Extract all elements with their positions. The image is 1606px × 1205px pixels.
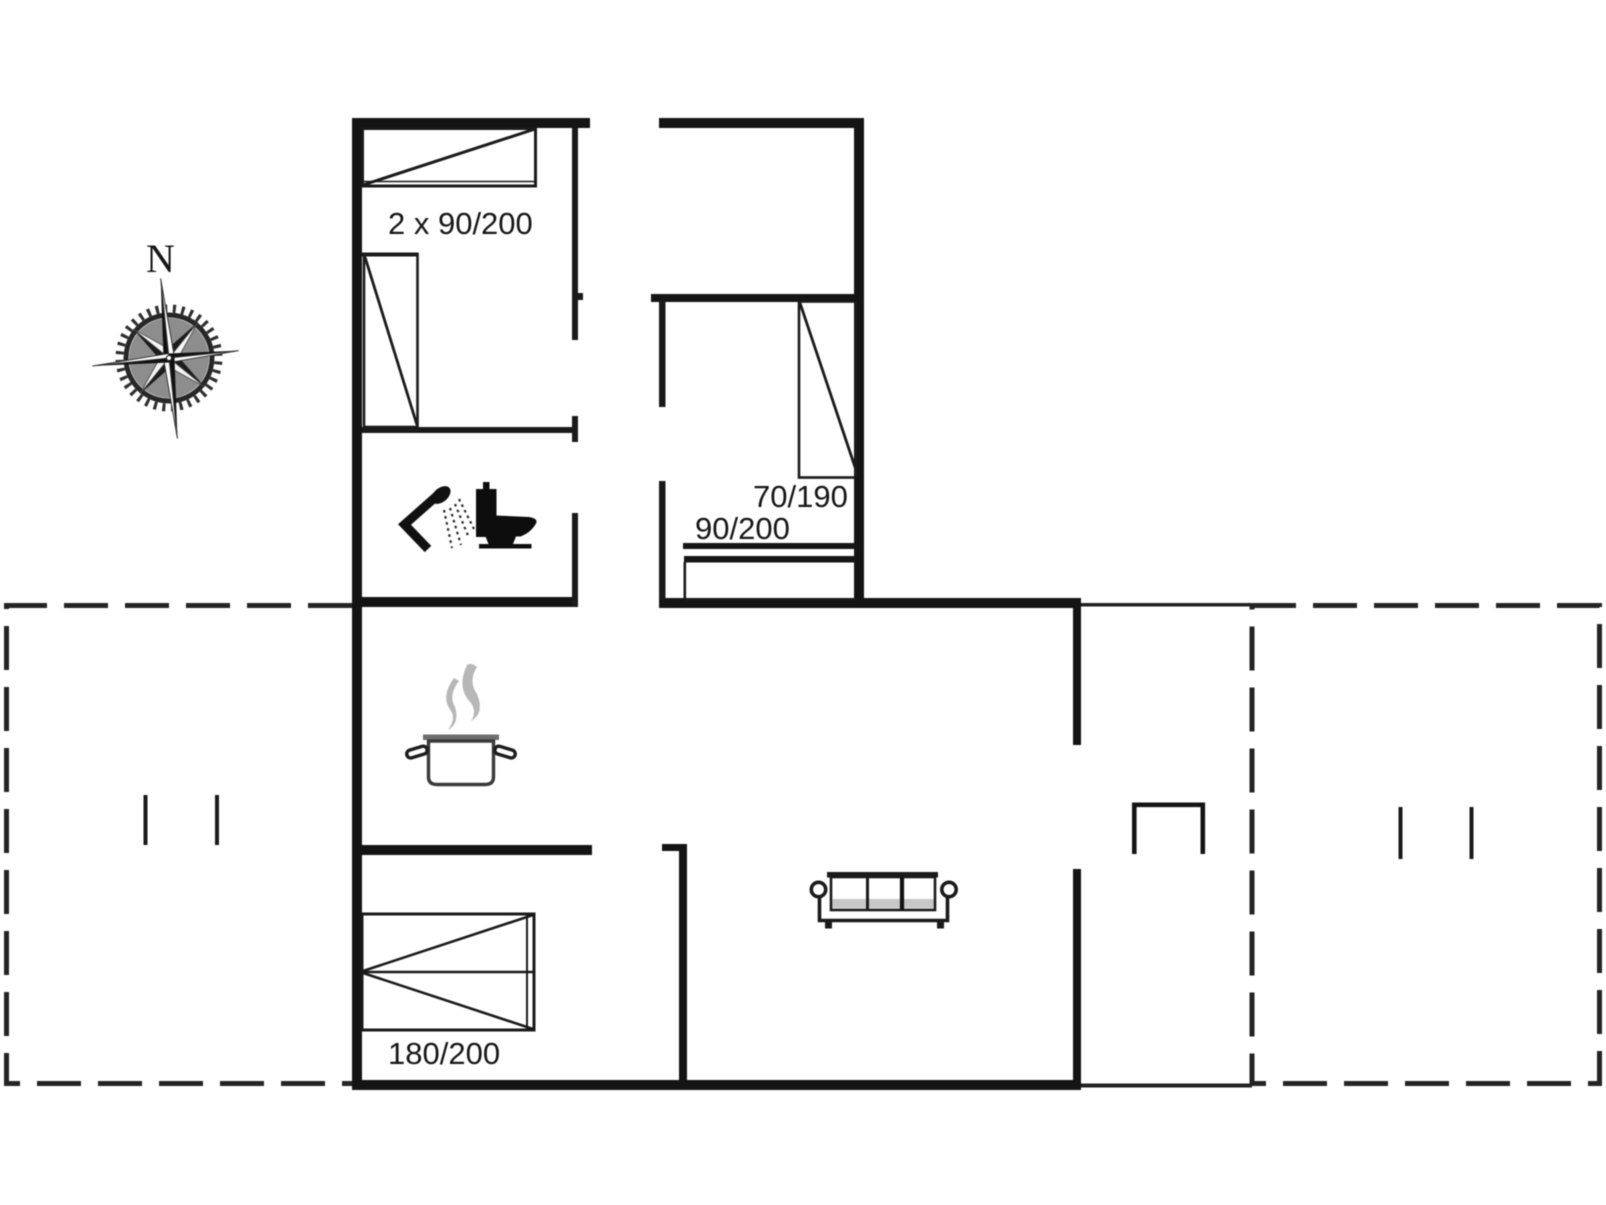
svg-text:N: N <box>146 236 175 281</box>
svg-text:2 x 90/200: 2 x 90/200 <box>388 206 533 241</box>
svg-text:70/190: 70/190 <box>753 479 848 514</box>
svg-text:90/200: 90/200 <box>695 511 790 546</box>
svg-text:180/200: 180/200 <box>388 1036 500 1071</box>
